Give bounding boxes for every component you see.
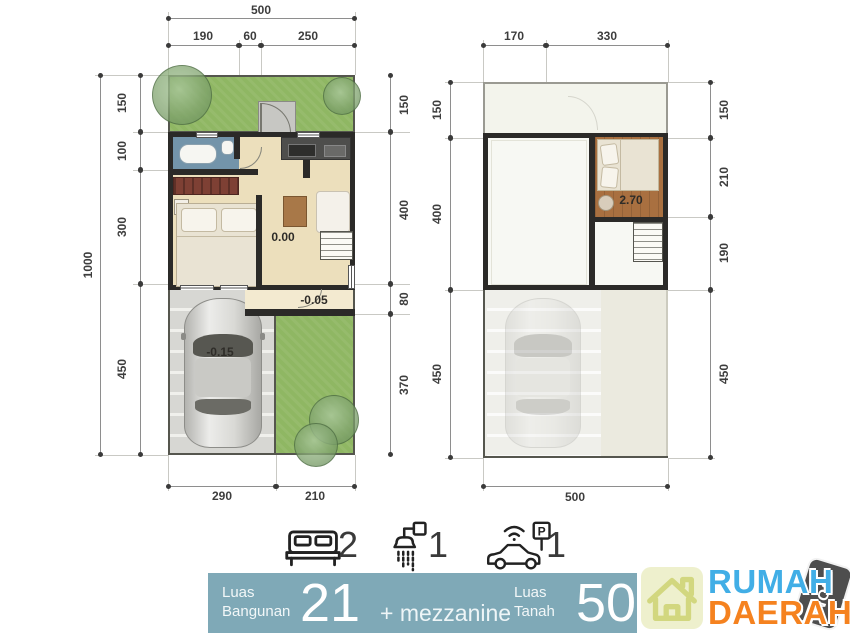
terrace-edge-wall	[245, 309, 355, 316]
dim-label: 100	[115, 131, 129, 171]
dim-label: 400	[430, 194, 444, 234]
logo-word-daerah: DAERAH	[708, 598, 850, 628]
carport-count: 1	[546, 522, 566, 568]
dimension-line	[168, 486, 276, 487]
toilet	[221, 140, 234, 155]
dim-label: 210	[717, 157, 731, 197]
sofa	[316, 191, 350, 233]
dimension-line	[450, 290, 451, 458]
dimension-line	[710, 82, 711, 138]
bed	[176, 203, 260, 287]
dim-label: 80	[397, 279, 411, 319]
dimension-line	[483, 45, 546, 46]
level-label-mezzanine: 2.70	[611, 193, 651, 207]
wall	[303, 160, 310, 178]
dimension-line	[168, 18, 355, 19]
dim-label: 250	[288, 29, 328, 43]
pillow	[600, 166, 619, 189]
wall	[256, 195, 262, 290]
car-windshield	[514, 334, 572, 357]
house-icon	[641, 567, 703, 629]
info-bar: Luas Bangunan 21 + mezzanine Luas Tanah …	[208, 573, 637, 633]
dim-label-total-width: 500	[241, 3, 281, 17]
dim-label: 450	[717, 354, 731, 394]
car	[184, 298, 262, 448]
dimension-line	[390, 284, 391, 314]
dimension-line	[710, 290, 711, 458]
dimension-line	[390, 314, 391, 455]
dim-label: 60	[230, 29, 270, 43]
pillow	[181, 208, 217, 232]
dim-label: 450	[430, 354, 444, 394]
logo-house-box	[641, 567, 703, 629]
shower-icon	[392, 520, 428, 574]
extension-line	[95, 455, 168, 456]
dimension-line	[276, 486, 355, 487]
dim-label: 190	[183, 29, 223, 43]
dimension-line	[100, 75, 101, 455]
dim-label-total-height: 1000	[81, 245, 95, 285]
level-label-main: 0.00	[263, 230, 303, 244]
bed	[597, 139, 659, 191]
dim-label: 210	[295, 489, 335, 503]
pillow	[221, 208, 257, 232]
dim-label: 330	[587, 29, 627, 43]
dimension-line	[710, 138, 711, 217]
dimension-line	[140, 75, 141, 132]
bathroom	[173, 137, 239, 169]
land-area-label-line1: Luas	[514, 583, 555, 602]
blanket-line	[177, 236, 259, 237]
sink	[324, 145, 346, 157]
bedroom-count: 2	[338, 522, 358, 568]
kitchen-counter	[281, 137, 351, 160]
dimension-line	[450, 138, 451, 290]
dimension-line	[710, 217, 711, 290]
dim-label: 190	[717, 233, 731, 273]
dimension-line	[390, 75, 391, 132]
dimension-line	[140, 132, 141, 170]
car-mirror	[181, 333, 186, 341]
logo-word-rumah: RUMAH	[708, 567, 833, 597]
land-area-label: Luas Tanah	[514, 583, 555, 621]
building-area-label-line2: Bangunan	[222, 602, 290, 621]
dim-label: 150	[115, 83, 129, 123]
blanket-line	[620, 140, 621, 190]
tree	[152, 65, 212, 125]
void-room	[491, 140, 587, 285]
building-area-label-line1: Luas	[222, 583, 290, 602]
extension-line	[95, 75, 168, 76]
dim-label: 450	[115, 349, 129, 389]
dimension-line	[390, 132, 391, 284]
dimension-line	[140, 284, 141, 455]
dimension-line	[450, 82, 451, 138]
bathtub	[179, 144, 217, 164]
car-rear-window	[195, 399, 251, 416]
stove	[288, 144, 316, 157]
dim-label: 290	[202, 489, 242, 503]
dimension-line	[168, 45, 239, 46]
dim-label: 300	[115, 207, 129, 247]
dim-label: 400	[397, 190, 411, 230]
window	[297, 132, 320, 138]
dim-label: 150	[397, 85, 411, 125]
dim-label: 370	[397, 365, 411, 405]
car-rear-window	[516, 399, 571, 416]
ground-floor-ghost	[483, 290, 668, 458]
mezzanine-plan: 2.70	[483, 82, 668, 458]
car-mirror	[260, 333, 265, 341]
dimension-line	[140, 170, 141, 284]
window	[196, 132, 218, 138]
tree	[294, 423, 338, 467]
dimension-line	[483, 486, 668, 487]
parking-sign-letter: P	[538, 524, 546, 538]
stairs	[320, 231, 353, 260]
stairs	[633, 222, 663, 262]
car-ghost	[505, 298, 581, 448]
pillow	[600, 143, 620, 166]
dim-label: 170	[494, 29, 534, 43]
dim-label: 150	[717, 90, 731, 130]
building-area-value: 21	[300, 573, 360, 633]
land-area-value: 50	[576, 573, 636, 633]
dining-table	[283, 196, 307, 227]
wardrobe	[173, 177, 239, 195]
entry-door-leaf	[260, 103, 262, 133]
mezzanine-suffix: + mezzanine	[380, 600, 511, 627]
dimension-line	[261, 45, 355, 46]
car-roof	[195, 358, 251, 397]
dim-label: 150	[430, 90, 444, 130]
ground-floor-plan: 0.00 -0.15 -0.05	[168, 75, 355, 455]
bathroom-count: 1	[428, 522, 448, 568]
building-area-label: Luas Bangunan	[222, 583, 290, 621]
land-area-label-line2: Tanah	[514, 602, 555, 621]
dimension-line	[546, 45, 668, 46]
dimension-line	[239, 45, 261, 46]
floorplan-canvas: 500 190 60 250 1000 150 100 300 450 150 …	[0, 0, 850, 633]
bed-icon	[283, 524, 343, 568]
tree	[323, 77, 361, 115]
extension-line	[355, 132, 410, 133]
level-label-terrace: -0.05	[294, 293, 334, 307]
wall	[168, 169, 258, 175]
carport-icon: P	[482, 520, 552, 572]
window	[348, 265, 355, 289]
ghost-garden	[601, 290, 668, 456]
dim-label: 500	[555, 490, 595, 504]
car-roof	[516, 358, 571, 397]
level-label-carport: -0.15	[200, 345, 240, 359]
